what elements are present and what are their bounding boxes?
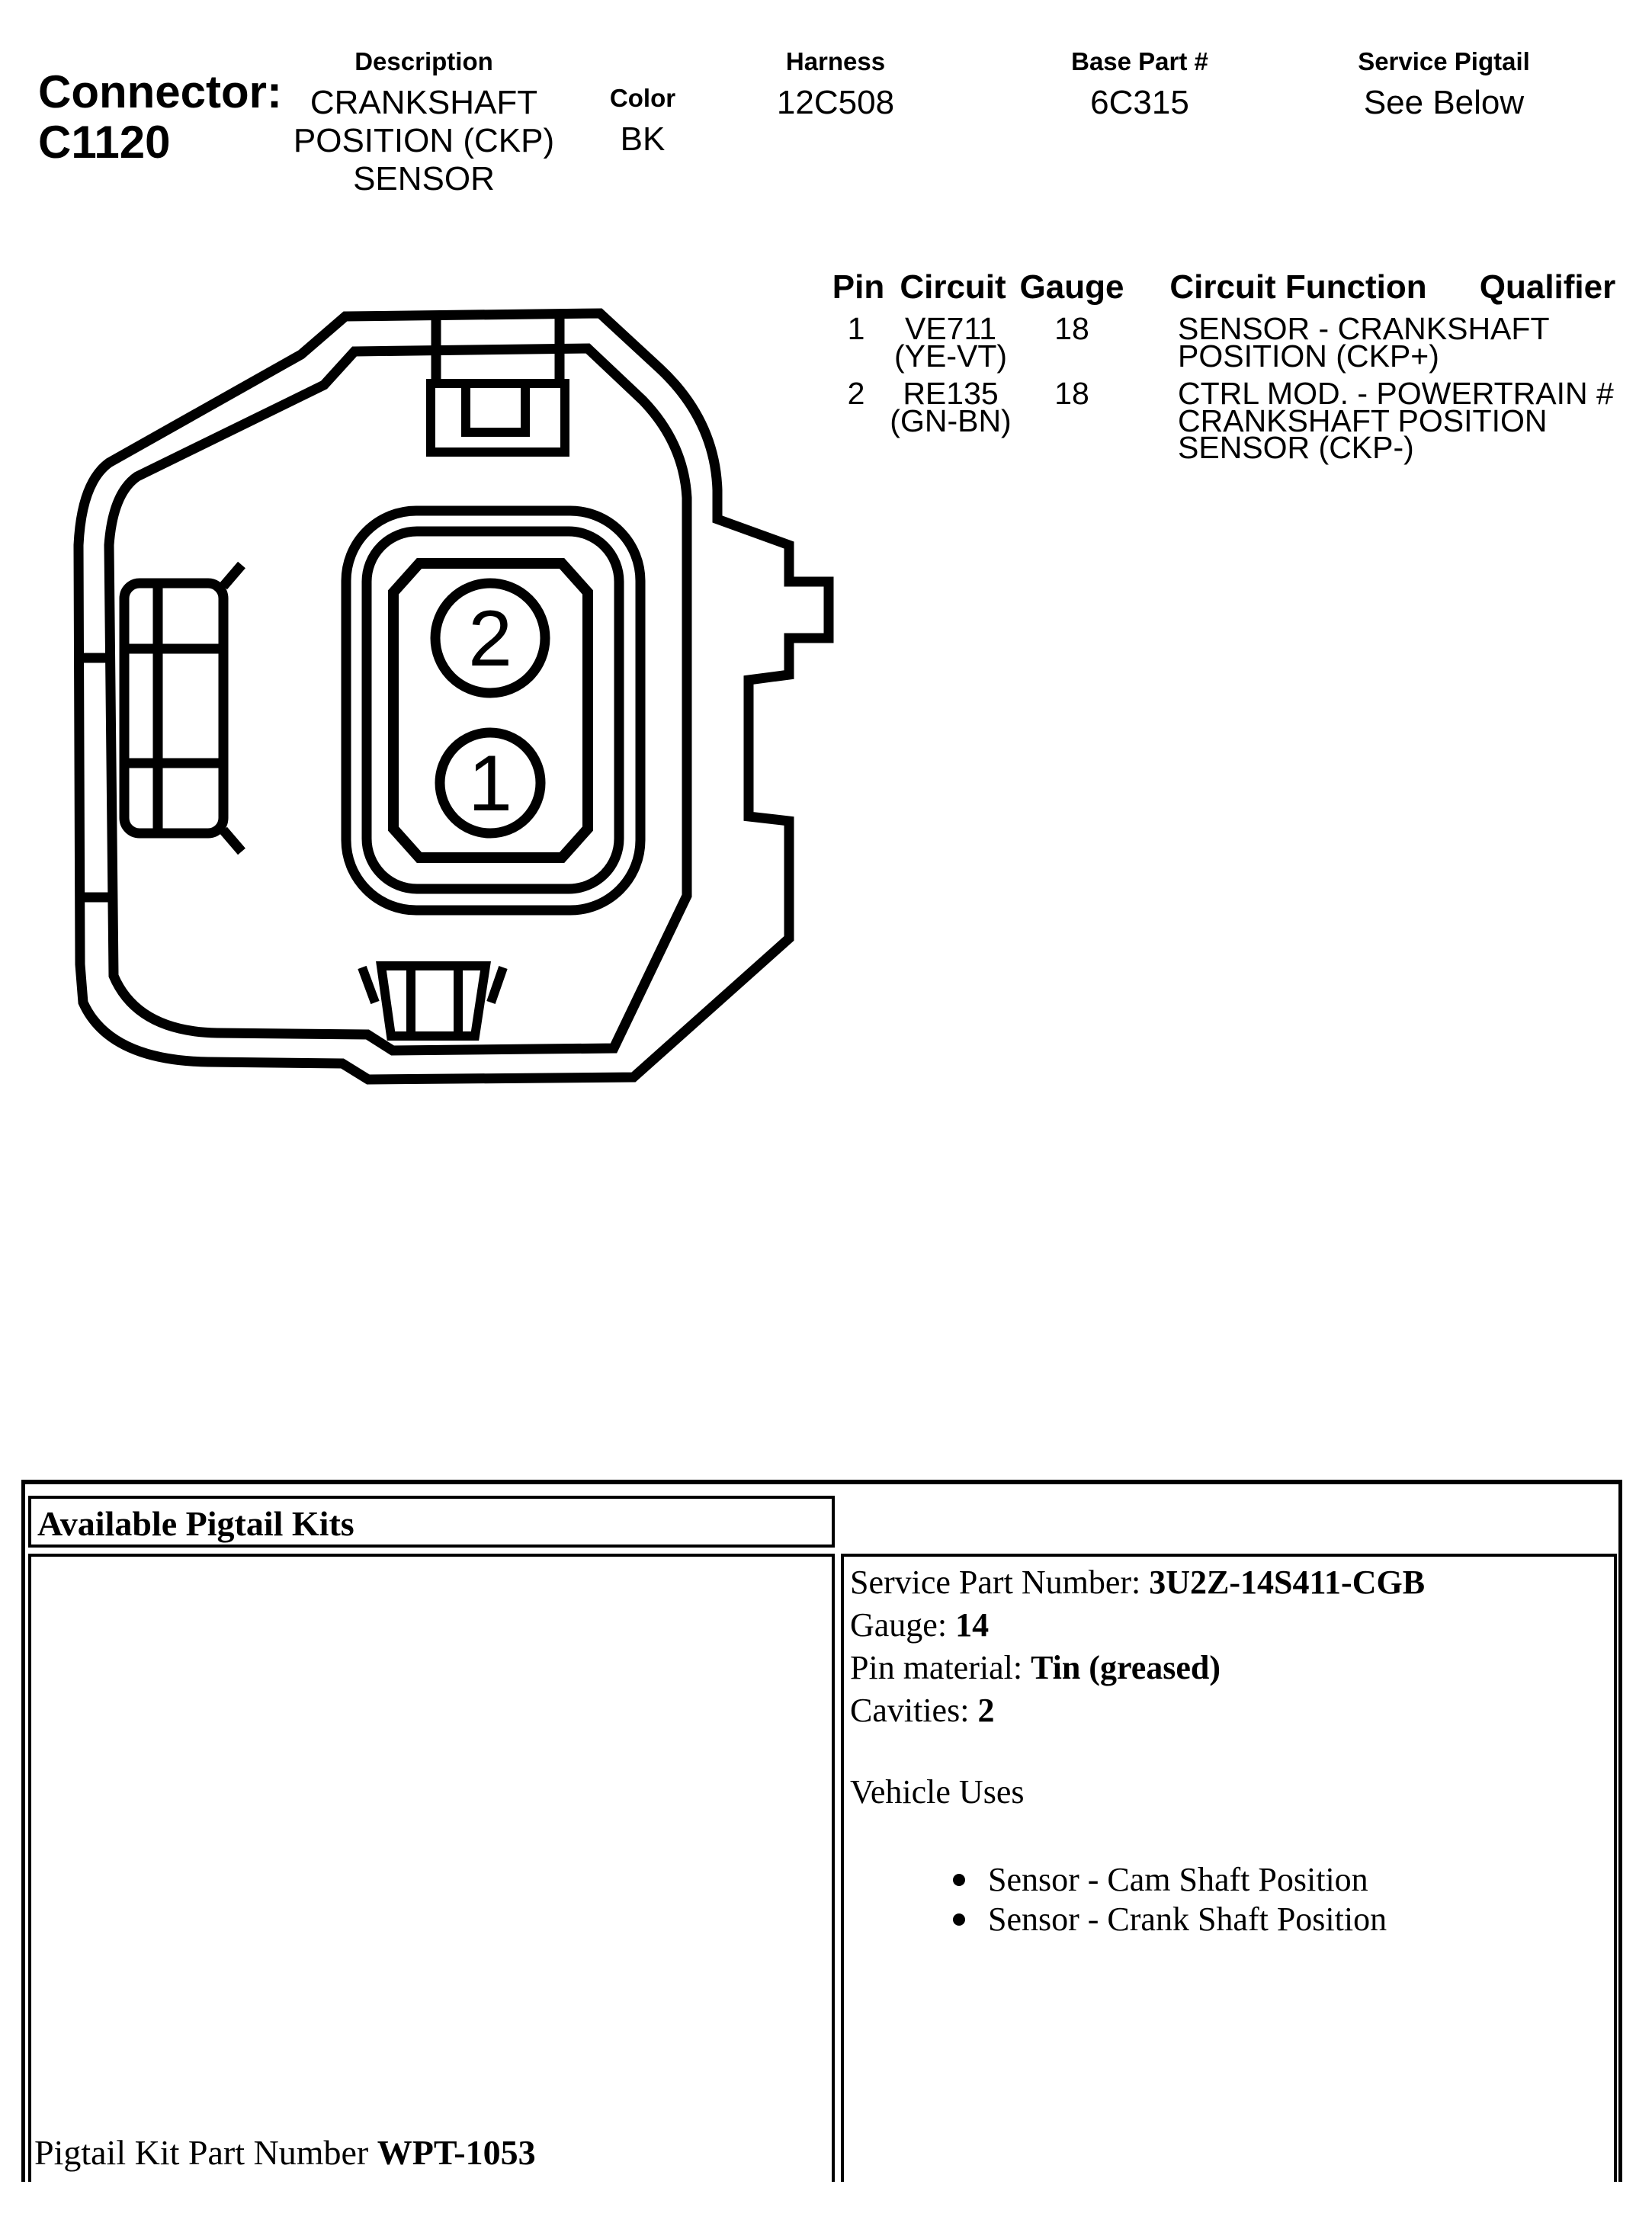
connector-face-diagram: 2 1 xyxy=(34,294,842,1113)
pigtail-kit-label: Pigtail Kit Part Number xyxy=(34,2133,377,2172)
function-line: POSITION (CKP+) xyxy=(1178,338,1439,374)
bottom-index-tab xyxy=(381,966,486,1036)
pigtail-kit-part-number-line: Pigtail Kit Part Number WPT-1053 xyxy=(34,2132,536,2173)
vehicle-uses-title: Vehicle Uses xyxy=(850,1772,1025,1811)
base-part-header: Base Part # xyxy=(1071,47,1208,76)
pigtail-kit-box xyxy=(28,1554,835,2182)
pin-cell: 1 xyxy=(848,311,865,347)
connector-label: Connector: xyxy=(38,66,282,118)
function-line: SENSOR (CKP-) xyxy=(1178,430,1414,466)
description-value: CRANKSHAFT POSITION (CKP) SENSOR xyxy=(282,84,566,198)
vehicle-use-text: Sensor - Cam Shaft Position xyxy=(988,1861,1368,1898)
left-latch-rail xyxy=(124,583,223,833)
gauge-cell: 18 xyxy=(1054,311,1089,347)
base-part-value: 6C315 xyxy=(1090,84,1189,122)
harness-header: Harness xyxy=(786,47,885,76)
top-lock-tab-slot xyxy=(466,383,525,432)
qualifier-col-header: Qualifier xyxy=(1480,268,1616,306)
cavities-label: Cavities: xyxy=(850,1692,977,1729)
available-pigtail-kits-title: Available Pigtail Kits xyxy=(37,1503,354,1544)
gauge-cell: 18 xyxy=(1054,376,1089,412)
gauge-value: 14 xyxy=(955,1606,989,1644)
pin-2-number: 2 xyxy=(468,595,512,683)
service-part-number-label: Service Part Number: xyxy=(850,1564,1149,1601)
pin-material-value: Tin (greased) xyxy=(1031,1649,1221,1686)
pin-cell: 2 xyxy=(848,376,865,412)
gauge-col-header: Gauge xyxy=(1020,268,1124,306)
vehicle-use-item: Sensor - Crank Shaft Position xyxy=(953,1900,1387,1939)
section-divider-rule xyxy=(21,1480,1622,1484)
cavities-value: 2 xyxy=(977,1692,994,1729)
service-pigtail-header: Service Pigtail xyxy=(1358,47,1530,76)
pin-material-line: Pin material: Tin (greased) xyxy=(850,1648,1221,1687)
circuit-color-cell: (GN-BN) xyxy=(890,403,1011,439)
gauge-line: Gauge: 14 xyxy=(850,1605,989,1644)
service-part-number-value: 3U2Z-14S411-CGB xyxy=(1149,1564,1425,1601)
bullet-icon xyxy=(953,1874,965,1886)
vehicle-use-item: Sensor - Cam Shaft Position xyxy=(953,1860,1368,1899)
pigtail-kit-number: WPT-1053 xyxy=(377,2133,536,2172)
outer-left-border xyxy=(21,1480,25,2182)
description-header: Description xyxy=(354,47,493,76)
harness-value: 12C508 xyxy=(777,84,894,122)
color-value: BK xyxy=(621,120,666,159)
outer-right-border xyxy=(1618,1480,1622,2182)
connector-spec-page: Connector: C1120 Description CRANKSHAFT … xyxy=(0,0,1652,2239)
circuit-col-header: Circuit xyxy=(900,268,1006,306)
circuit-color-cell: (YE-VT) xyxy=(894,338,1007,374)
service-part-number-line: Service Part Number: 3U2Z-14S411-CGB xyxy=(850,1563,1425,1602)
pin-1-number: 1 xyxy=(468,739,512,828)
pin-material-label: Pin material: xyxy=(850,1649,1031,1686)
connector-id: C1120 xyxy=(38,116,171,168)
service-pigtail-value: See Below xyxy=(1364,84,1524,122)
bullet-icon xyxy=(953,1913,965,1926)
color-header: Color xyxy=(610,84,675,113)
cavities-line: Cavities: 2 xyxy=(850,1691,994,1730)
vehicle-use-text: Sensor - Crank Shaft Position xyxy=(988,1901,1387,1938)
function-col-header: Circuit Function xyxy=(1169,268,1426,306)
available-pigtail-kits-box: Available Pigtail Kits xyxy=(28,1496,835,1548)
gauge-label: Gauge: xyxy=(850,1606,955,1644)
